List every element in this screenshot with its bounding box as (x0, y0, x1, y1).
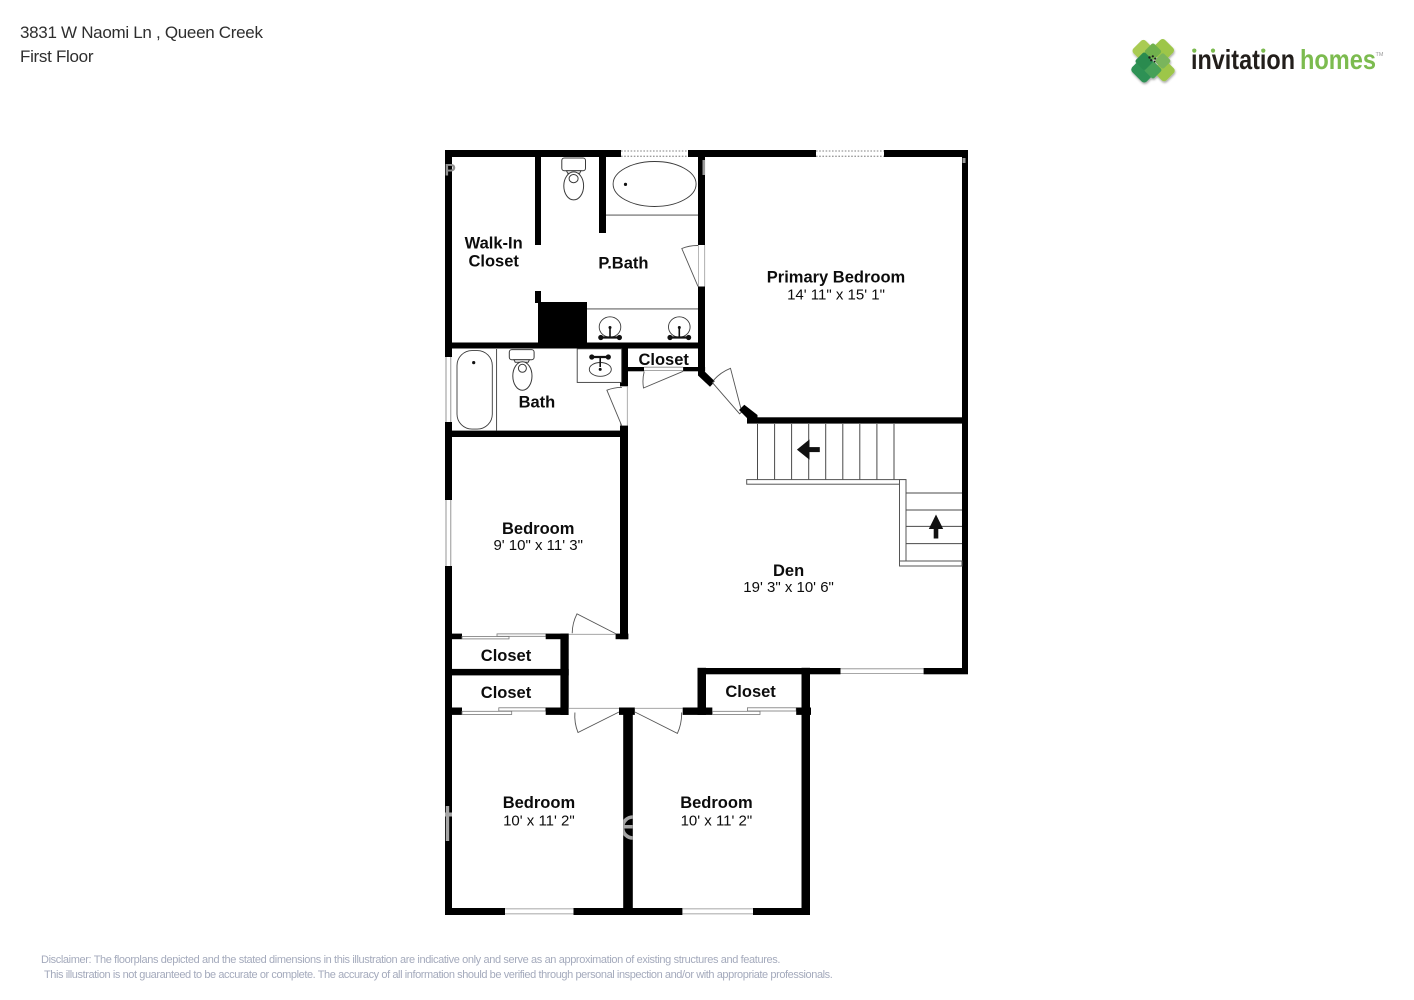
svg-text:TM: TM (1376, 52, 1384, 58)
svg-text:Closet: Closet (638, 351, 689, 369)
svg-text:Bath: Bath (519, 394, 556, 412)
svg-text:Walk-In: Walk-In (465, 235, 523, 253)
svg-text:homes: homes (1300, 44, 1376, 75)
svg-text:9' 10" x 11' 3": 9' 10" x 11' 3" (493, 537, 583, 554)
svg-text:19' 3" x 10' 6": 19' 3" x 10' 6" (743, 579, 834, 596)
svg-text:P.Bath: P.Bath (598, 255, 648, 273)
svg-text:Bedroom: Bedroom (502, 520, 574, 538)
svg-text:10' x 11' 2": 10' x 11' 2" (681, 812, 753, 829)
svg-text:14' 11" x 15' 1": 14' 11" x 15' 1" (787, 287, 885, 304)
svg-text:Closet: Closet (725, 683, 776, 701)
svg-text:Primary Bedroom: Primary Bedroom (767, 269, 905, 287)
svg-text:P: P (445, 161, 456, 180)
svg-text:Closet: Closet (468, 253, 519, 271)
svg-text:invitation: invitation (1191, 44, 1295, 75)
svg-text:Closet: Closet (481, 647, 532, 665)
svg-text:Den: Den (773, 562, 804, 580)
svg-text:Bedroom: Bedroom (503, 794, 575, 812)
svg-text:Bedroom: Bedroom (680, 794, 752, 812)
svg-text:10' x 11' 2": 10' x 11' 2" (503, 812, 575, 829)
svg-text:Closet: Closet (481, 684, 532, 702)
